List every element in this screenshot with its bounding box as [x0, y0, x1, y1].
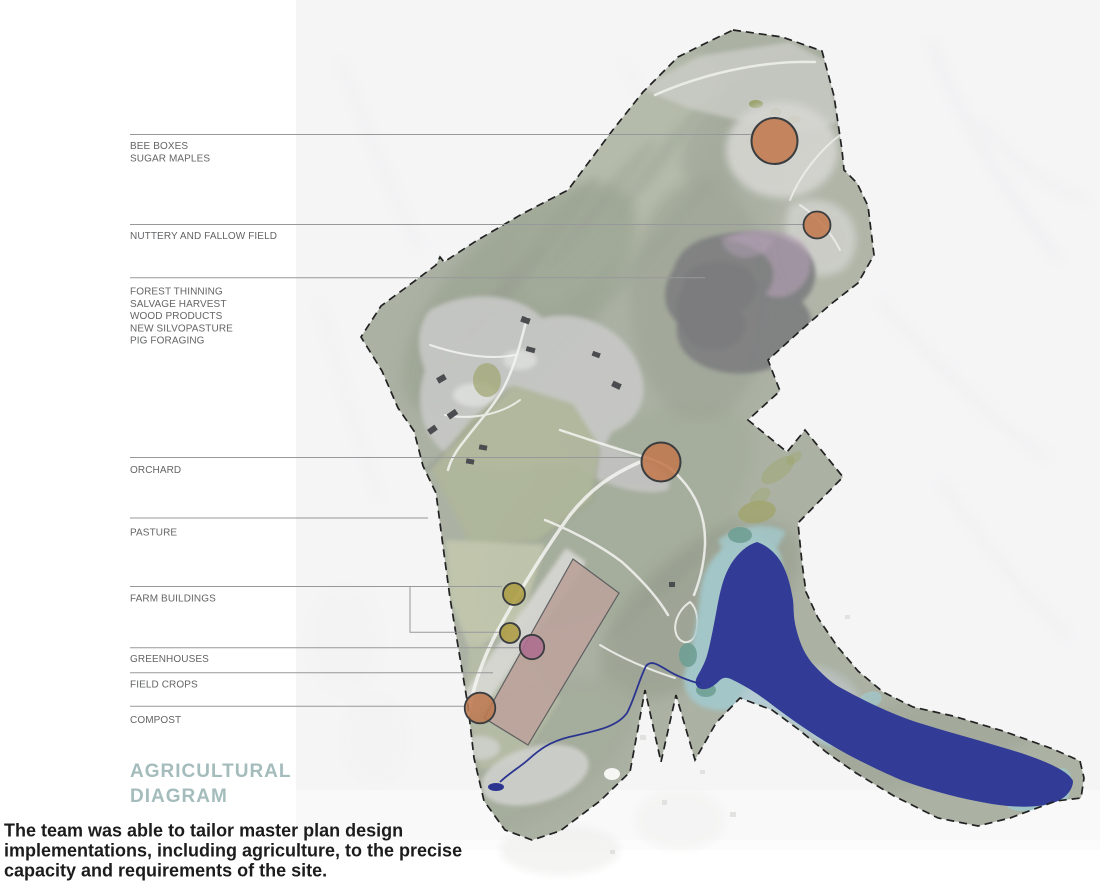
svg-text:FOREST THINNING: FOREST THINNING: [130, 287, 223, 298]
svg-text:AGRICULTURAL: AGRICULTURAL: [130, 761, 292, 782]
svg-text:PIG FORAGING: PIG FORAGING: [130, 336, 205, 347]
svg-text:NUTTERY AND FALLOW FIELD: NUTTERY AND FALLOW FIELD: [130, 231, 277, 242]
svg-text:COMPOST: COMPOST: [130, 715, 181, 726]
svg-text:ORCHARD: ORCHARD: [130, 465, 181, 476]
svg-text:FIELD CROPS: FIELD CROPS: [130, 680, 198, 691]
svg-text:WOOD PRODUCTS: WOOD PRODUCTS: [130, 311, 223, 322]
svg-text:BEE BOXES: BEE BOXES: [130, 141, 188, 152]
svg-text:DIAGRAM: DIAGRAM: [130, 786, 228, 807]
svg-text:SUGAR MAPLES: SUGAR MAPLES: [130, 154, 210, 165]
svg-text:capacity and requirements of t: capacity and requirements of the site.: [4, 861, 327, 881]
svg-text:NEW SILVOPASTURE: NEW SILVOPASTURE: [130, 323, 233, 334]
svg-text:SALVAGE HARVEST: SALVAGE HARVEST: [130, 299, 227, 310]
svg-text:PASTURE: PASTURE: [130, 528, 177, 539]
svg-text:GREENHOUSES: GREENHOUSES: [130, 654, 209, 665]
svg-text:FARM BUILDINGS: FARM BUILDINGS: [130, 594, 216, 605]
svg-text:The team was able to tailor ma: The team was able to tailor master plan …: [4, 821, 403, 841]
svg-text:implementations, including agr: implementations, including agriculture, …: [4, 841, 462, 861]
